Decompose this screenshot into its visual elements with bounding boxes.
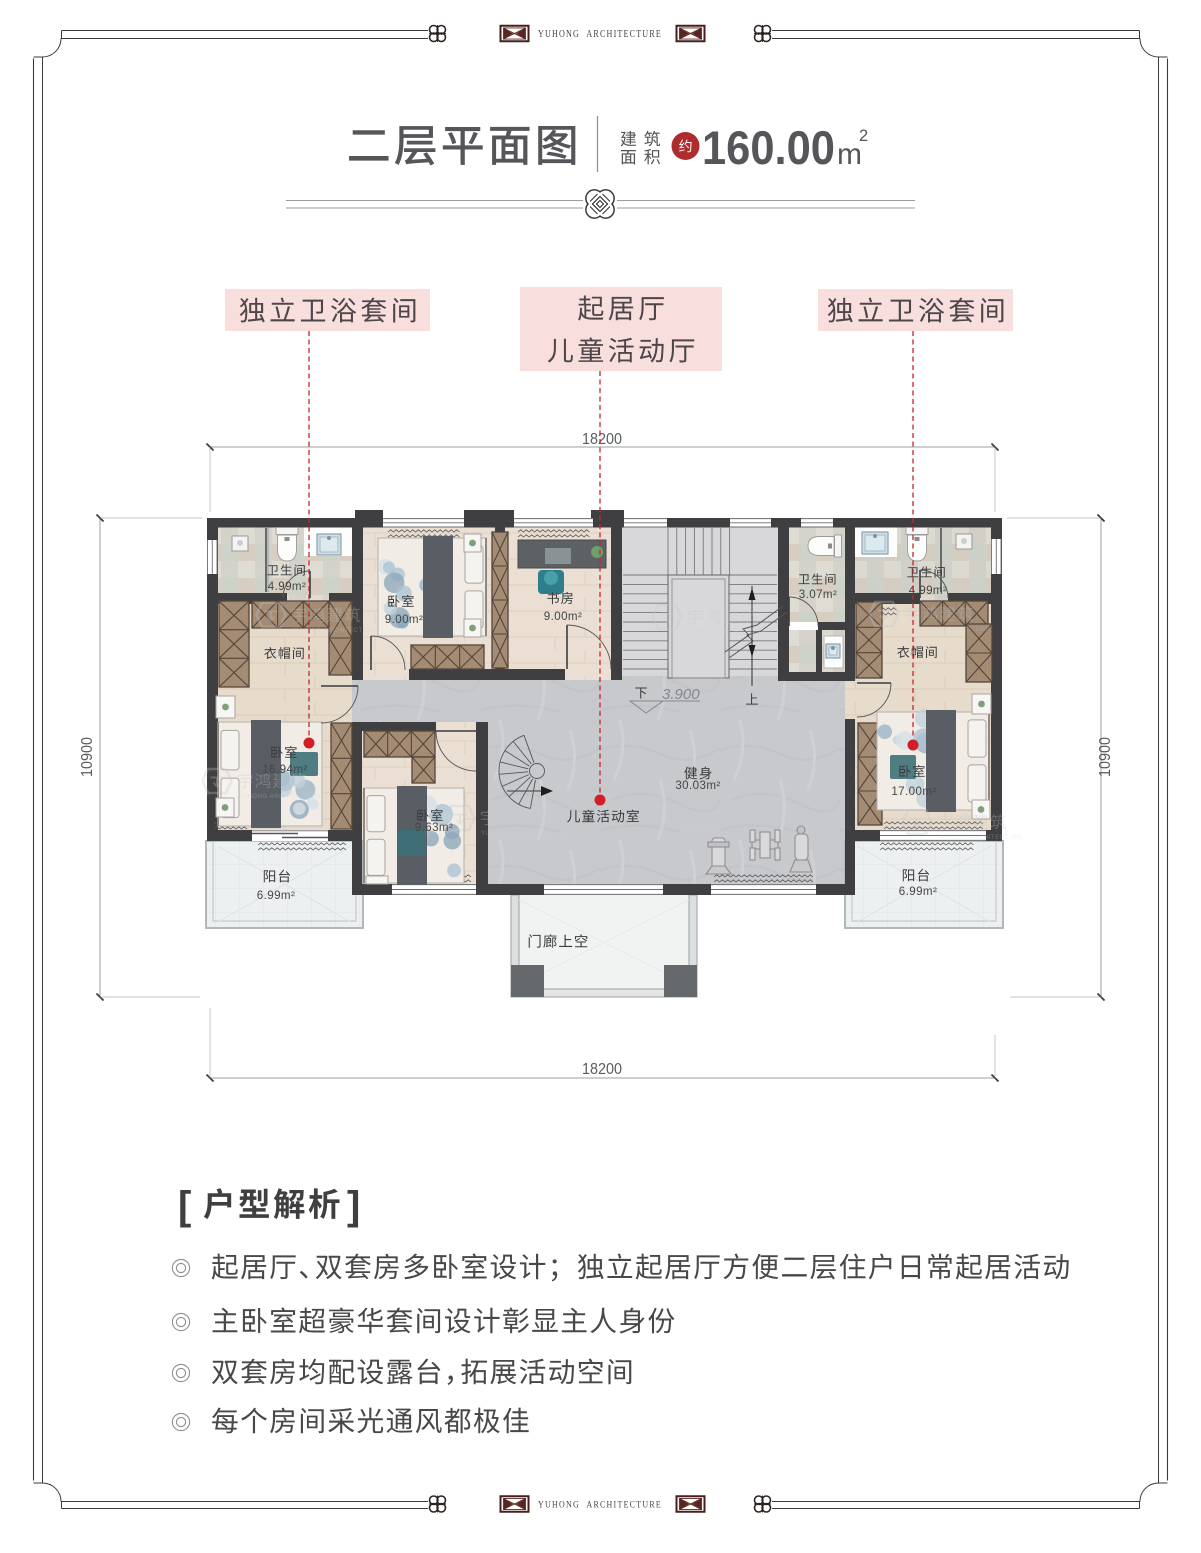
svg-text:9.00m²: 9.00m²: [544, 610, 582, 623]
svg-text:YUHONG ARCHITECTURE: YUHONG ARCHITECTURE: [938, 834, 1023, 841]
svg-text:YUHONG ARCHITECTURE: YUHONG ARCHITECTURE: [905, 626, 990, 633]
svg-text:4.99m²: 4.99m²: [268, 580, 306, 593]
svg-text:YUHONG ARCHITECTURE: YUHONG ARCHITECTURE: [538, 1500, 662, 1510]
svg-text:YUHONG ARCHITECTURE: YUHONG ARCHITECTURE: [679, 825, 764, 832]
svg-text:YUHONG ARCHITECTURE: YUHONG ARCHITECTURE: [688, 629, 773, 636]
svg-text:30.03m²: 30.03m²: [675, 779, 720, 792]
svg-text:6.99m²: 6.99m²: [257, 889, 295, 902]
svg-text:[: [: [178, 1184, 191, 1228]
svg-text:3.07m²: 3.07m²: [799, 588, 837, 601]
svg-text:6.99m²: 6.99m²: [899, 885, 937, 898]
svg-text:17.00m²: 17.00m²: [891, 785, 936, 798]
svg-text:9.00m²: 9.00m²: [385, 613, 423, 626]
svg-text:YUHONG ARCHITECTURE: YUHONG ARCHITECTURE: [538, 29, 662, 40]
svg-text:160.00: 160.00: [702, 121, 835, 174]
svg-text:YUHONG ARCHITECTURE: YUHONG ARCHITECTURE: [292, 627, 377, 634]
svg-text:YUHONG ARCHITECTURE: YUHONG ARCHITECTURE: [238, 793, 323, 800]
svg-text:2: 2: [859, 127, 868, 145]
svg-text:10900: 10900: [79, 737, 96, 777]
svg-text:18200: 18200: [582, 1061, 622, 1078]
svg-text:10900: 10900: [1097, 737, 1114, 777]
svg-text:9.63m²: 9.63m²: [415, 821, 453, 834]
svg-text:18200: 18200: [582, 431, 622, 448]
svg-text:YUHONG ARCHITECTURE: YUHONG ARCHITECTURE: [481, 830, 566, 837]
svg-text:3.900: 3.900: [662, 686, 700, 703]
svg-text:16.94m²: 16.94m²: [262, 763, 307, 776]
svg-text:]: ]: [347, 1184, 360, 1228]
svg-text:4.99m²: 4.99m²: [909, 584, 947, 597]
